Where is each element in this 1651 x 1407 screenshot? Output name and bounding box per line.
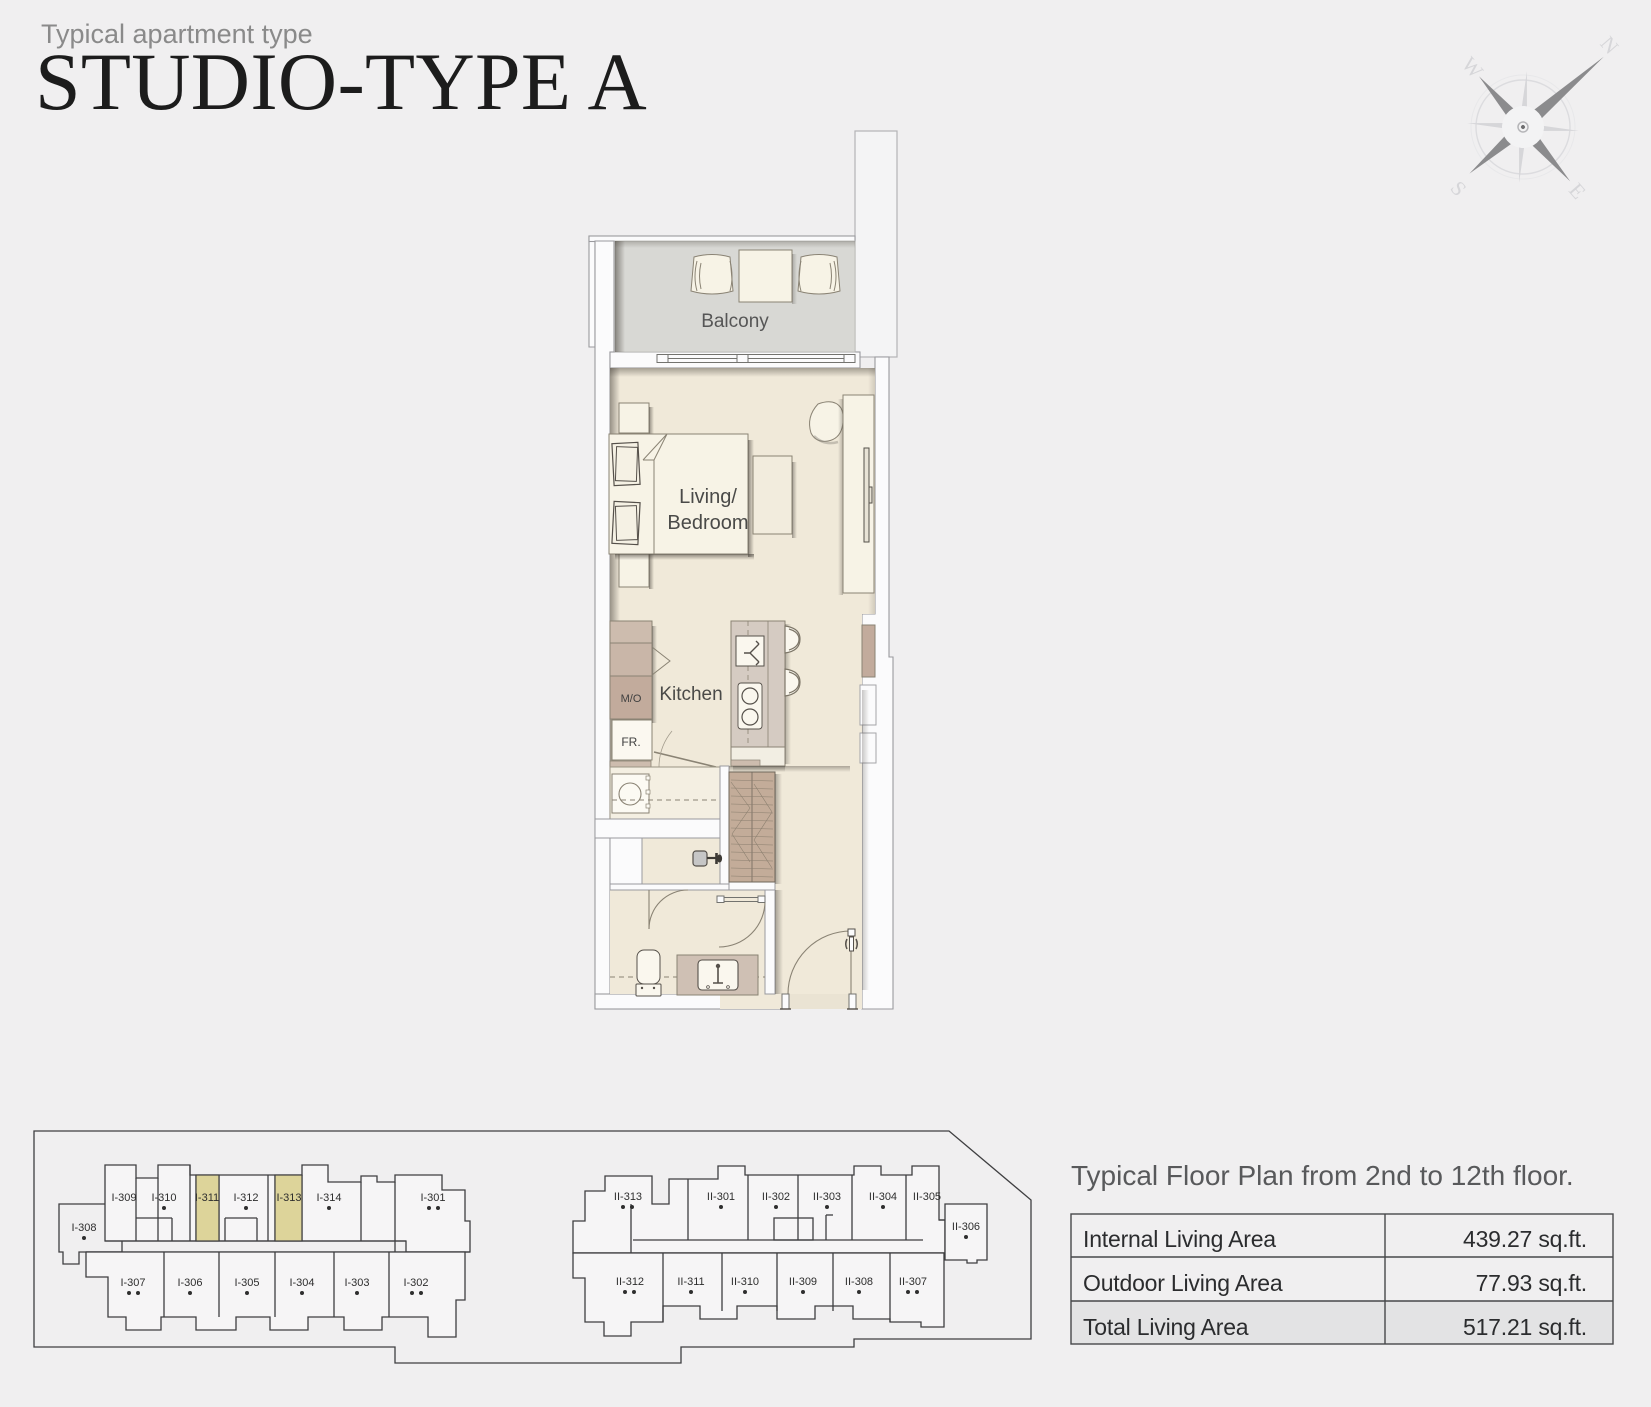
svg-text:I-313: I-313	[276, 1192, 301, 1204]
svg-text:Total Living Area: Total Living Area	[1083, 1314, 1249, 1340]
svg-text:Kitchen: Kitchen	[659, 684, 722, 705]
svg-text:I-302: I-302	[403, 1277, 428, 1289]
svg-text:II-313: II-313	[614, 1191, 642, 1203]
svg-text:77.93 sq.ft.: 77.93 sq.ft.	[1476, 1270, 1587, 1296]
svg-text:Typical Floor Plan from 2nd to: Typical Floor Plan from 2nd to 12th floo…	[1071, 1160, 1574, 1191]
svg-text:I-301: I-301	[420, 1192, 445, 1204]
svg-text:Outdoor Living Area: Outdoor Living Area	[1083, 1270, 1283, 1296]
svg-text:STUDIO-TYPE A: STUDIO-TYPE A	[35, 36, 647, 127]
svg-text:II-311: II-311	[677, 1276, 704, 1288]
svg-text:Balcony: Balcony	[701, 311, 769, 332]
svg-text:II-303: II-303	[813, 1191, 841, 1203]
svg-text:I-308: I-308	[71, 1222, 96, 1234]
svg-text:II-307: II-307	[899, 1276, 927, 1288]
svg-text:I-307: I-307	[120, 1277, 145, 1289]
svg-text:II-306: II-306	[952, 1221, 980, 1233]
svg-text:Living/: Living/	[679, 486, 737, 508]
svg-text:517.21 sq.ft.: 517.21 sq.ft.	[1463, 1314, 1587, 1340]
svg-text:439.27 sq.ft.: 439.27 sq.ft.	[1463, 1226, 1587, 1252]
svg-text:II-301: II-301	[707, 1191, 735, 1203]
svg-text:I-304: I-304	[289, 1277, 314, 1289]
svg-text:I-312: I-312	[233, 1192, 258, 1204]
svg-text:I-311: I-311	[195, 1192, 219, 1204]
svg-text:II-302: II-302	[762, 1191, 790, 1203]
svg-text:I-303: I-303	[344, 1277, 369, 1289]
svg-text:II-305: II-305	[913, 1191, 941, 1203]
svg-text:Bedroom: Bedroom	[667, 512, 748, 534]
svg-text:I-309: I-309	[111, 1192, 136, 1204]
svg-text:II-310: II-310	[731, 1276, 759, 1288]
svg-text:I-314: I-314	[316, 1192, 341, 1204]
svg-text:I-310: I-310	[151, 1192, 176, 1204]
svg-text:I-306: I-306	[177, 1277, 202, 1289]
svg-text:II-304: II-304	[869, 1191, 897, 1203]
svg-text:II-308: II-308	[845, 1276, 873, 1288]
svg-text:II-309: II-309	[789, 1276, 817, 1288]
svg-text:I-305: I-305	[234, 1277, 259, 1289]
svg-text:II-312: II-312	[616, 1276, 644, 1288]
svg-text:M/O: M/O	[621, 693, 642, 705]
svg-text:Internal Living Area: Internal Living Area	[1083, 1226, 1276, 1252]
svg-text:FR.: FR.	[621, 735, 640, 749]
